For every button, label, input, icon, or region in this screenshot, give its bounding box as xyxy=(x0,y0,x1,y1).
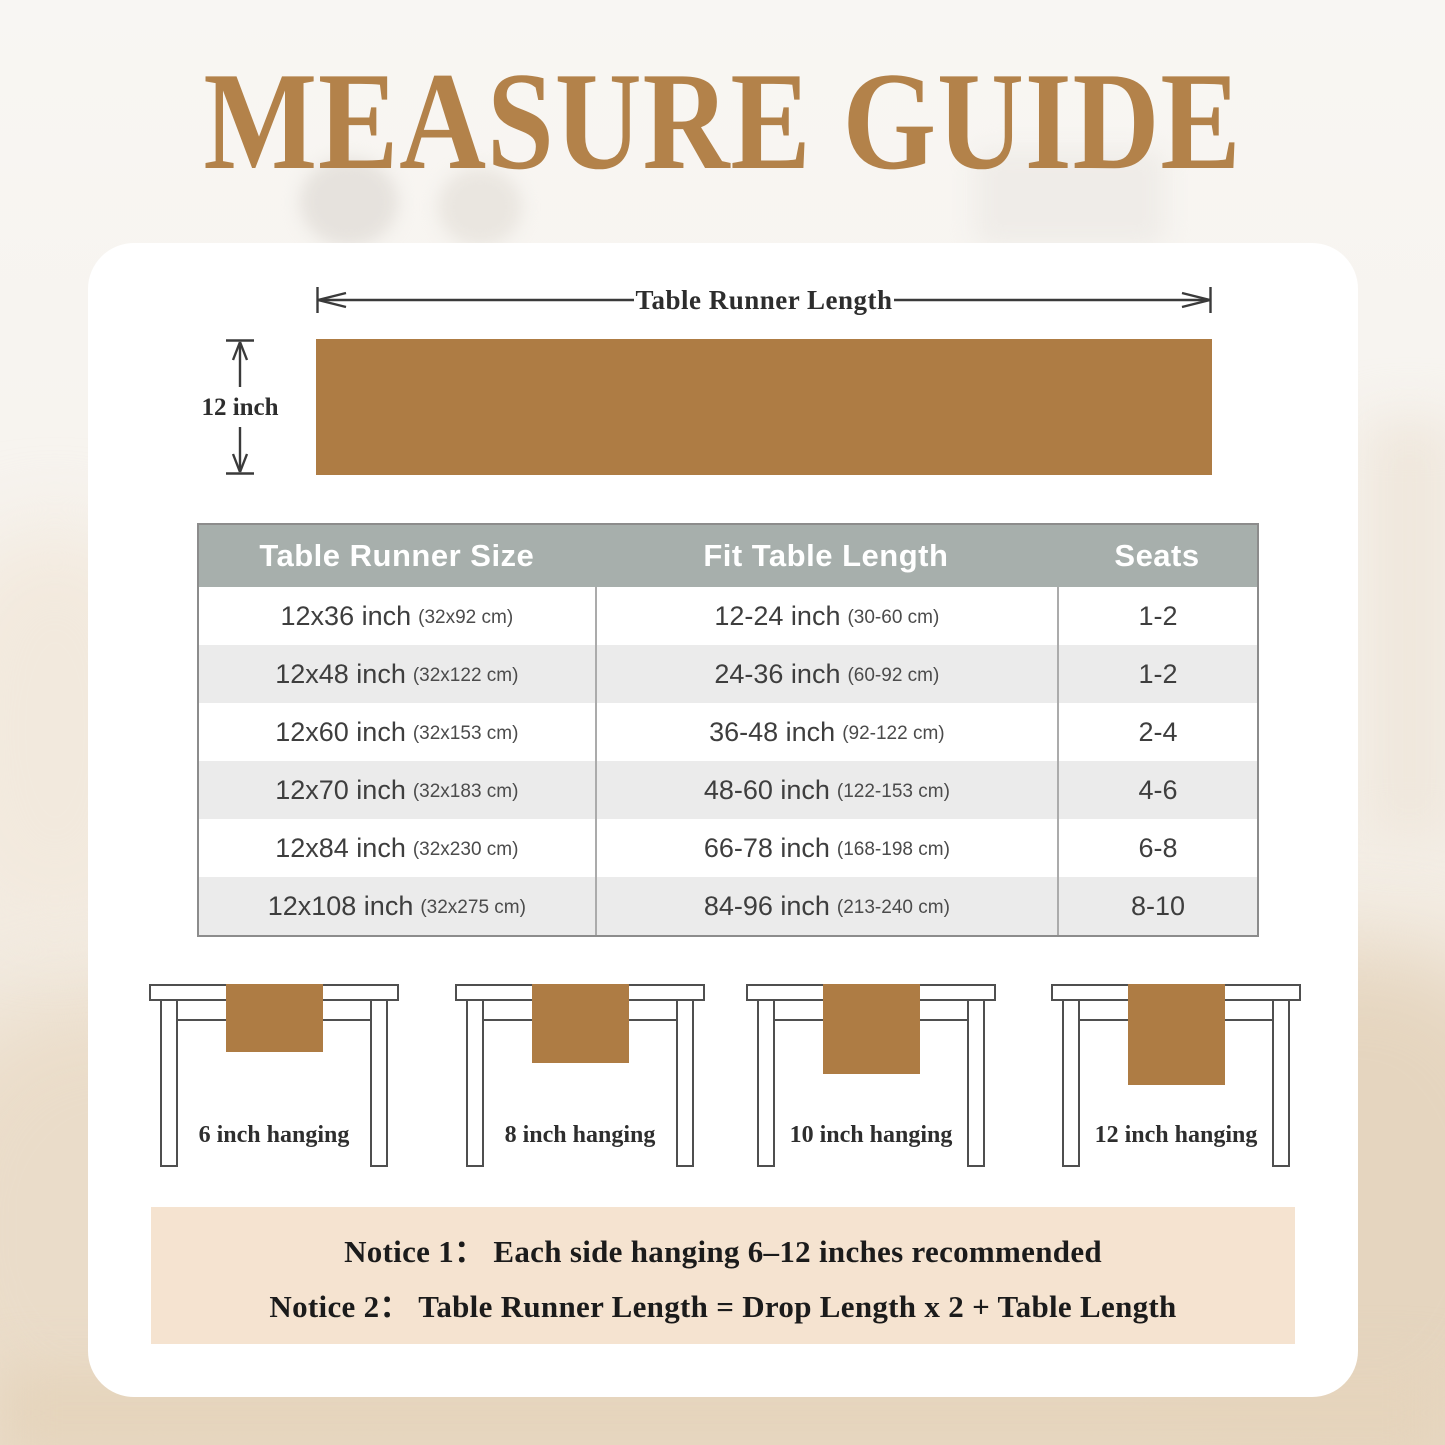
runner-size-cell: 12x36 inch(32x92 cm) xyxy=(199,587,595,645)
seats-cell: 4-6 xyxy=(1057,761,1257,819)
length-dimension-indicator: Table Runner Length xyxy=(316,280,1212,320)
runner-size-cell: 12x70 inch(32x183 cm) xyxy=(199,761,595,819)
notice-line-1: Notice 1： Each side hanging 6–12 inches … xyxy=(344,1226,1102,1271)
size-table-header-row: Table Runner Size Fit Table Length Seats xyxy=(199,525,1257,587)
hanging-example-label: 6 inch hanging xyxy=(149,1122,399,1149)
hanging-example-label: 8 inch hanging xyxy=(455,1122,705,1149)
header-cell-runner-size: Table Runner Size xyxy=(199,525,595,587)
fit-length-cell: 84-96 inch(213-240 cm) xyxy=(595,877,1057,935)
hanging-example-12-inch: 12 inch hanging xyxy=(1051,984,1301,1168)
seats-cell: 6-8 xyxy=(1057,819,1257,877)
seats-cell: 2-4 xyxy=(1057,703,1257,761)
width-dimension-label: 12 inch xyxy=(201,395,278,420)
fit-length-cell: 12-24 inch(30-60 cm) xyxy=(595,587,1057,645)
table-row: 12x36 inch(32x92 cm) 12-24 inch(30-60 cm… xyxy=(199,587,1257,645)
page-title: MEASURE GUIDE xyxy=(101,52,1344,192)
table-row: 12x48 inch(32x122 cm) 24-36 inch(60-92 c… xyxy=(199,645,1257,703)
length-dimension-label: Table Runner Length xyxy=(635,280,892,320)
runner-drape xyxy=(823,984,920,1074)
header-cell-seats: Seats xyxy=(1057,525,1257,587)
width-dimension-indicator: 12 inch xyxy=(200,339,280,475)
hanging-example-6-inch: 6 inch hanging xyxy=(149,984,399,1168)
hanging-example-10-inch: 10 inch hanging xyxy=(746,984,996,1168)
hanging-example-8-inch: 8 inch hanging xyxy=(455,984,705,1168)
runner-size-cell: 12x60 inch(32x153 cm) xyxy=(199,703,595,761)
seats-cell: 1-2 xyxy=(1057,645,1257,703)
table-row: 12x108 inch(32x275 cm) 84-96 inch(213-24… xyxy=(199,877,1257,935)
runner-size-cell: 12x108 inch(32x275 cm) xyxy=(199,877,595,935)
hanging-example-label: 10 inch hanging xyxy=(746,1122,996,1149)
seats-cell: 1-2 xyxy=(1057,587,1257,645)
runner-drape xyxy=(226,984,323,1052)
table-row: 12x84 inch(32x230 cm) 66-78 inch(168-198… xyxy=(199,819,1257,877)
measure-guide-card: Table Runner Length 12 inch xyxy=(88,243,1358,1397)
background-photo-blur xyxy=(1362,420,1445,840)
seats-cell: 8-10 xyxy=(1057,877,1257,935)
fit-length-cell: 36-48 inch(92-122 cm) xyxy=(595,703,1057,761)
notice-line-2: Notice 2： Table Runner Length = Drop Len… xyxy=(269,1281,1176,1326)
header-cell-fit-length: Fit Table Length xyxy=(595,525,1057,587)
notice-box: Notice 1： Each side hanging 6–12 inches … xyxy=(151,1207,1295,1344)
page: MEASURE GUIDE Table Runner Length xyxy=(0,0,1445,1445)
runner-drape xyxy=(532,984,629,1063)
vertical-arrow-down-icon xyxy=(222,427,258,475)
fit-length-cell: 66-78 inch(168-198 cm) xyxy=(595,819,1057,877)
runner-size-cell: 12x48 inch(32x122 cm) xyxy=(199,645,595,703)
table-runner-swatch xyxy=(316,339,1212,475)
fit-length-cell: 48-60 inch(122-153 cm) xyxy=(595,761,1057,819)
vertical-arrow-up-icon xyxy=(222,339,258,387)
hanging-example-label: 12 inch hanging xyxy=(1051,1122,1301,1149)
runner-drape xyxy=(1128,984,1225,1085)
table-row: 12x60 inch(32x153 cm) 36-48 inch(92-122 … xyxy=(199,703,1257,761)
size-table: Table Runner Size Fit Table Length Seats… xyxy=(197,523,1259,937)
runner-size-cell: 12x84 inch(32x230 cm) xyxy=(199,819,595,877)
table-row: 12x70 inch(32x183 cm) 48-60 inch(122-153… xyxy=(199,761,1257,819)
fit-length-cell: 24-36 inch(60-92 cm) xyxy=(595,645,1057,703)
